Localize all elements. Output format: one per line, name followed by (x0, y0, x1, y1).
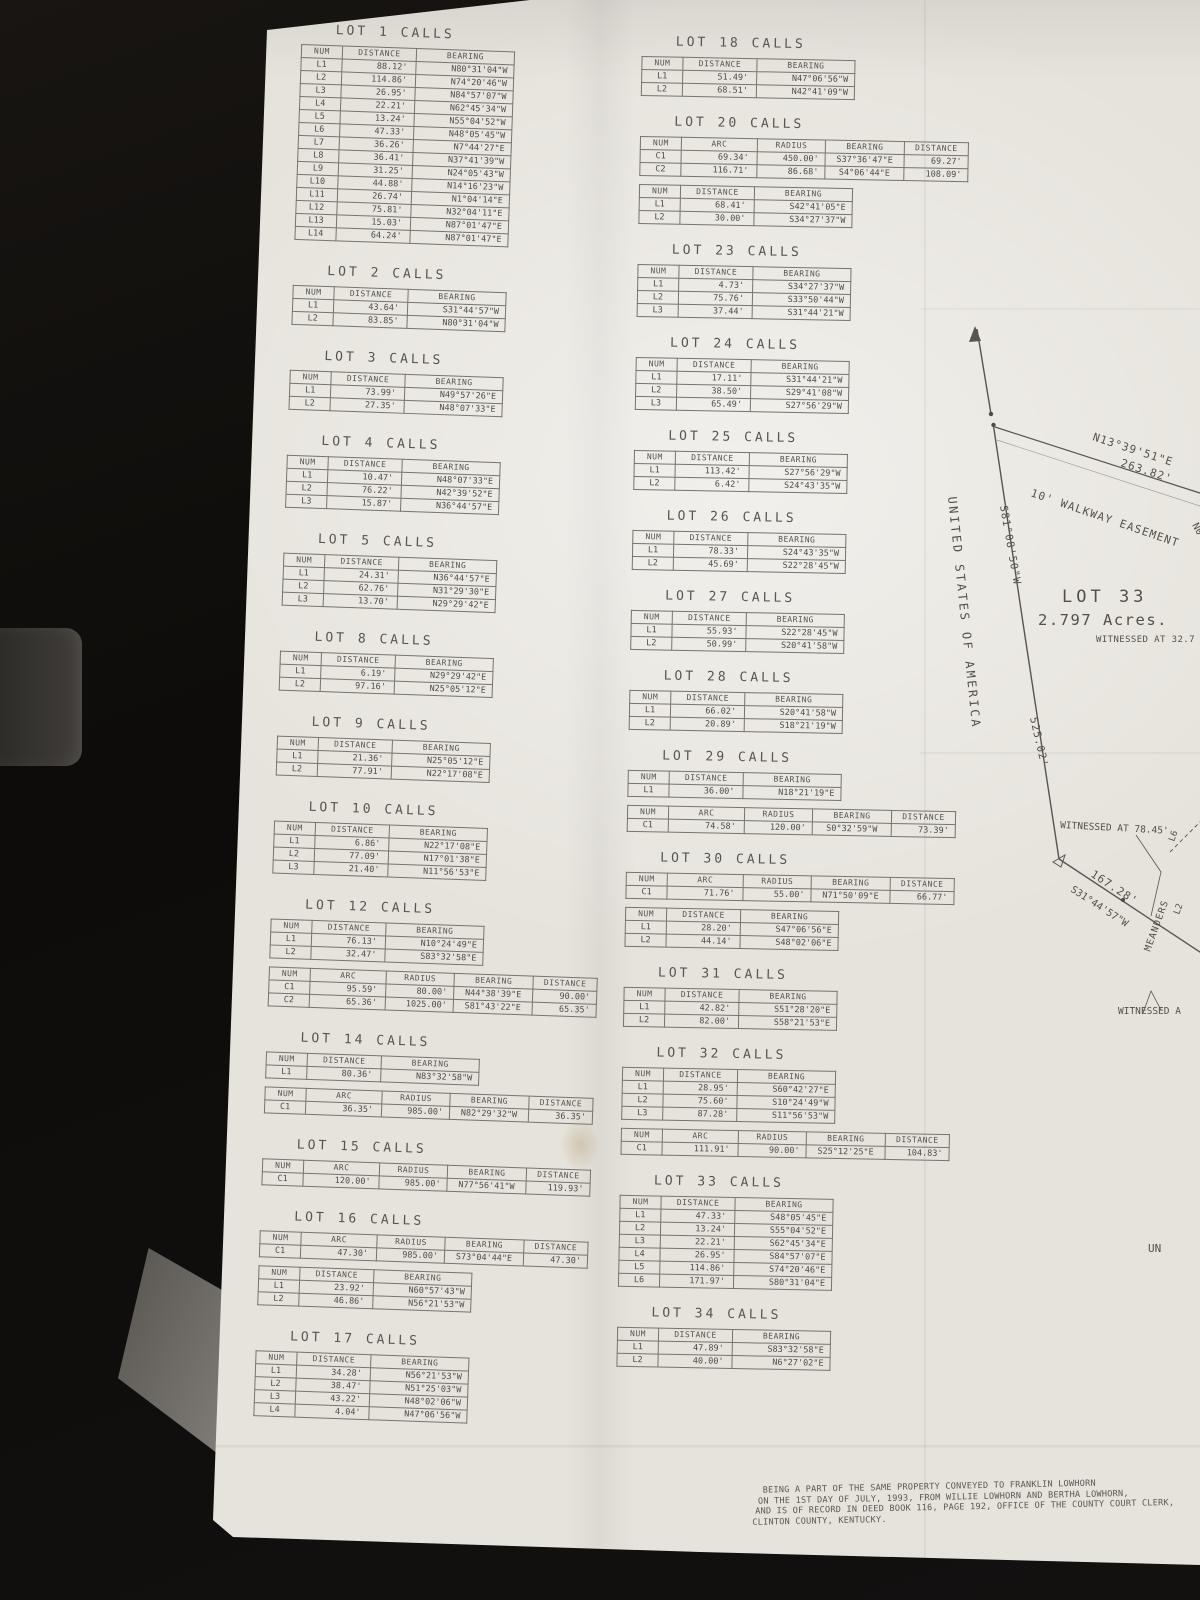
map-label-owner: UNITED STATES OF AMERICA (945, 496, 983, 730)
call-cell: L2 (619, 1221, 660, 1235)
call-cell: L1 (642, 70, 683, 84)
call-cell: 97.16' (320, 679, 394, 695)
call-cell: N71°50'09"E (811, 889, 890, 904)
call-cell: N47°06'56"W (369, 1407, 467, 1423)
call-cell: 21.40' (314, 861, 388, 877)
call-cell: L2 (629, 716, 670, 730)
call-cell: N77°56'41"W (447, 1178, 526, 1194)
call-cell: 47.30' (300, 1245, 376, 1261)
column-header: NUM (631, 610, 672, 624)
call-cell: 111.91' (662, 1142, 738, 1156)
lot-title: LOT 17 CALLS (290, 1329, 596, 1355)
call-cell: S11°56'53"W (737, 1109, 835, 1124)
call-cell: S20°41'58"W (746, 639, 844, 654)
map-label-meanders: MEANDERS (1142, 899, 1171, 953)
lot-title: LOT 23 CALLS (672, 243, 978, 264)
call-cell: S0°32'59"W (812, 822, 891, 837)
call-cell: 985.00' (376, 1248, 444, 1263)
call-cell: C1 (640, 149, 681, 163)
calls-table: NUMDISTANCEBEARINGL147.33'S48°05'45"EL21… (618, 1195, 834, 1291)
call-cell: L4 (254, 1403, 295, 1417)
call-cell: L5 (619, 1260, 660, 1274)
calls-table: NUMARCRADIUSBEARINGDISTANCEC147.30'985.0… (259, 1230, 589, 1268)
call-cell: 74.58' (668, 819, 744, 833)
column-header: NUM (638, 264, 679, 278)
lot-calls-block: LOT 10 CALLSNUMDISTANCEBEARINGL16.86'N22… (272, 799, 614, 886)
lot-calls-block: LOT 16 CALLSNUMARCRADIUSBEARINGDISTANCEC… (257, 1208, 600, 1317)
calls-table: NUMDISTANCEBEARINGL147.89'S83°32'58"EL24… (616, 1327, 831, 1371)
call-cell: 46.86' (299, 1293, 373, 1309)
calls-table: NUMDISTANCEBEARINGL128.95'S60°42'27"EL27… (621, 1067, 836, 1124)
lot-title: LOT 3 CALLS (324, 349, 630, 375)
lot-title: LOT 12 CALLS (305, 898, 611, 924)
corner-point (989, 412, 993, 416)
call-cell: L6 (618, 1273, 659, 1287)
lot-calls-block: LOT 29 CALLSNUMDISTANCEBEARINGL136.00'N1… (627, 748, 969, 839)
calls-table: NUMDISTANCEBEARINGL16.86'N22°17'08"EL277… (272, 821, 488, 881)
call-row: L136.00'N18°21'19"E (628, 783, 841, 800)
call-row: L282.00'S58°21'53"E (623, 1013, 836, 1030)
call-cell: C1 (264, 1100, 305, 1114)
call-cell: S25°12'25"E (806, 1145, 885, 1160)
call-cell: 20.89' (670, 717, 744, 731)
calls-table: NUMARCRADIUSBEARINGDISTANCEC171.76'55.00… (625, 872, 954, 905)
call-cell: 90.00' (738, 1144, 806, 1158)
call-cell: 108.09' (904, 168, 968, 182)
call-cell: N36°44'57"E (400, 498, 498, 514)
call-cell: 65.49' (676, 397, 750, 411)
call-cell: N80°31'04"W (407, 315, 505, 331)
call-cell: L3 (286, 494, 327, 508)
column-header: NUM (620, 1195, 661, 1209)
call-cell: 40.00' (658, 1354, 732, 1368)
call-cell: 80.36' (307, 1066, 381, 1082)
column-header: DISTANCE (904, 142, 968, 156)
call-cell: L2 (636, 383, 677, 397)
column-header: NUM (630, 690, 671, 704)
call-cell: L1 (638, 277, 679, 291)
map-label-bearing: S81°08'50"W (997, 504, 1023, 585)
call-cell: N48°07'33"E (404, 400, 502, 416)
lot-calls-block: LOT 2 CALLSNUMDISTANCEBEARINGL143.64'S31… (291, 263, 633, 337)
column-header: RADIUS (743, 875, 811, 889)
call-cell: N6°27'02"E (732, 1355, 830, 1370)
call-cell: 86.68' (757, 165, 825, 179)
call-cell: C1 (626, 885, 667, 899)
paper-crease (210, 1445, 1200, 1449)
call-cell: 82.00' (664, 1014, 738, 1028)
lot-calls-block: LOT 14 CALLSNUMDISTANCEBEARINGL180.36'N8… (264, 1029, 607, 1125)
plat-map-fragment: UNITED STATES OF AMERICA S81°08'50"W N13… (920, 300, 1200, 1310)
calls-table: NUMARCRADIUSBEARINGDISTANCEC1111.91'90.0… (620, 1128, 949, 1161)
call-row: L240.00'N6°27'02"E (617, 1353, 830, 1370)
call-cell: L2 (623, 1013, 664, 1027)
calls-table: NUMDISTANCEBEARINGL136.00'N18°21'19"E (627, 770, 841, 801)
calls-table: NUMDISTANCEBEARINGL134.28'N56°21'53"WL23… (253, 1350, 469, 1423)
call-row: L26.42'S24°43'35"W (634, 476, 847, 493)
call-cell: 27.35' (330, 398, 404, 414)
call-cell: N42°41'09"W (756, 85, 854, 100)
call-cell: N29°29'42"E (397, 596, 495, 612)
call-cell: N11°56'53"E (388, 864, 486, 880)
call-row: L6171.97'S80°31'04"E (618, 1273, 831, 1290)
lot-calls-block: LOT 32 CALLSNUMDISTANCEBEARINGL128.95'S6… (620, 1045, 962, 1162)
lot-title: LOT 14 CALLS (300, 1031, 606, 1057)
call-cell: N56°21'53"W (373, 1296, 471, 1312)
lot-calls-block: LOT 33 CALLSNUMDISTANCEBEARINGL147.33'S4… (618, 1173, 960, 1294)
map-label-witness: WITNESSED AT 78.45' (1060, 820, 1169, 837)
column-header: NUM (640, 136, 681, 150)
call-cell: L2 (622, 1093, 663, 1107)
call-cell: L1 (617, 1340, 658, 1354)
call-cell: N87°01'47"E (410, 230, 508, 246)
call-cell: L2 (631, 636, 672, 650)
lot-calls-block: LOT 34 CALLSNUMDISTANCEBEARINGL147.89'S8… (616, 1305, 957, 1374)
call-cell: L1 (636, 370, 677, 384)
calls-table: NUMDISTANCEBEARINGL178.33'S24°43'35"WL24… (632, 530, 847, 574)
call-cell: L1 (620, 1208, 661, 1222)
lot-calls-block: LOT 17 CALLSNUMDISTANCEBEARINGL134.28'N5… (253, 1328, 596, 1428)
call-cell: 44.14' (666, 934, 740, 948)
call-cell: S4°06'44"E (825, 166, 904, 181)
column-header: NUM (639, 184, 680, 198)
call-row: L365.49'S27°56'29"W (635, 396, 848, 413)
call-cell: 45.69' (673, 557, 747, 571)
call-cell: L2 (632, 556, 673, 570)
lot-title: LOT 18 CALLS (676, 35, 982, 56)
call-cell: L2 (292, 311, 333, 325)
map-label-witness: WITNESSED A (1118, 1006, 1181, 1017)
calls-table: NUMDISTANCEBEARINGL143.64'S31°44'57"WL28… (291, 285, 506, 332)
call-cell: 37.44' (678, 304, 752, 318)
call-cell: S31°44'21"W (752, 306, 850, 321)
call-cell: 120.00' (303, 1173, 379, 1189)
calls-table: NUMARCRADIUSBEARINGDISTANCEC1120.00'985.… (261, 1158, 591, 1196)
map-label-cut-text: UN (1148, 1242, 1161, 1255)
map-label-distance: 525.02' (1027, 716, 1050, 769)
call-cell: 119.93' (526, 1181, 590, 1196)
call-cell: N25°05'12"E (394, 681, 492, 697)
lot-title: LOT 20 CALLS (674, 115, 980, 136)
calls-table: NUMDISTANCEBEARINGL180.36'N83°32'58"W (265, 1051, 480, 1085)
call-cell: L2 (258, 1292, 299, 1306)
lot-title: LOT 10 CALLS (308, 800, 614, 826)
call-cell: L2 (279, 677, 320, 691)
lot-calls-block: LOT 1 CALLSNUMDISTANCEBEARINGL188.12'N80… (294, 22, 641, 252)
call-cell: L1 (639, 197, 680, 211)
call-cell: L2 (276, 762, 317, 776)
calls-table: NUMDISTANCEBEARINGL155.93'S22°28'45"WL25… (630, 610, 845, 654)
call-cell: L1 (625, 920, 666, 934)
call-cell: L2 (639, 210, 680, 224)
calls-table: NUMARCRADIUSBEARINGDISTANCEC169.34'450.0… (639, 136, 969, 182)
call-cell: 32.47' (311, 946, 385, 962)
lot-title: LOT 1 CALLS (335, 23, 641, 49)
calls-table: NUMDISTANCEBEARINGL168.41'S42°41'05"EL23… (638, 184, 853, 228)
call-cell: 13.70' (323, 594, 397, 610)
call-cell: L3 (273, 860, 314, 874)
call-cell: 985.00' (381, 1104, 449, 1119)
lot-calls-block: LOT 8 CALLSNUMDISTANCEBEARINGL16.19'N29°… (279, 629, 621, 703)
call-cell: C1 (627, 818, 668, 832)
lot-title: LOT 33 CALLS (654, 1173, 960, 1194)
calls-table: NUMDISTANCEBEARINGL117.11'S31°44'21"WL23… (635, 357, 850, 414)
call-cell: 68.51' (682, 83, 756, 97)
calls-table: NUMDISTANCEBEARINGL188.12'N80°31'04"WL21… (294, 44, 515, 247)
call-cell: 30.00' (680, 211, 754, 225)
call-row: L220.89'S18°21'19"W (629, 716, 842, 733)
call-cell: 69.27' (904, 155, 968, 169)
map-label-lot-number: LOT 33 (1062, 587, 1147, 607)
column-header: RADIUS (738, 1131, 806, 1145)
calls-table: NUMDISTANCEBEARINGL142.82'S51°28'20"EL28… (623, 987, 838, 1031)
call-cell: 36.35' (528, 1109, 592, 1124)
call-cell: L2 (637, 290, 678, 304)
call-row: L387.28'S11°56'53"W (622, 1106, 835, 1123)
lot-calls-block: LOT 9 CALLSNUMDISTANCEBEARINGL121.36'N25… (276, 714, 618, 788)
call-cell: L1 (629, 703, 670, 717)
call-cell: C1 (262, 1172, 303, 1186)
call-cell: C1 (259, 1244, 300, 1258)
column-header: NUM (617, 1327, 658, 1341)
dark-object-left-edge (0, 628, 82, 766)
call-cell: 71.76' (667, 886, 743, 900)
calls-table: NUMDISTANCEBEARINGL14.73'S34°27'37"WL275… (637, 264, 852, 321)
calls-table: NUMDISTANCEBEARINGL166.02'S20°41'58"WL22… (629, 690, 844, 734)
calls-table: NUMDISTANCEBEARINGL173.99'N49°57'26"EL22… (288, 370, 503, 417)
call-cell: L3 (619, 1234, 660, 1248)
calls-table: NUMDISTANCEBEARINGL121.36'N25°05'12"EL27… (276, 736, 491, 783)
call-cell: 50.99' (672, 637, 746, 651)
call-cell: L3 (635, 396, 676, 410)
column-header: NUM (633, 530, 674, 544)
photo-of-survey-plat: LOT 1 CALLSNUMDISTANCEBEARINGL188.12'N80… (0, 0, 1200, 1600)
boundary-line (977, 329, 991, 414)
call-cell: S83°32'58"E (385, 949, 483, 965)
call-cell: 36.35' (305, 1101, 381, 1117)
lot-title: LOT 9 CALLS (311, 715, 617, 741)
call-cell: L1 (266, 1065, 307, 1079)
call-cell: 47.30' (523, 1253, 587, 1268)
call-cell: L2 (634, 476, 675, 490)
call-cell: C2 (268, 993, 309, 1007)
call-cell: L1 (624, 1000, 665, 1014)
column-header: NUM (626, 872, 667, 886)
call-cell: L1 (632, 543, 673, 557)
call-cell: 55.00' (743, 888, 811, 902)
lot-calls-block: LOT 18 CALLSNUMDISTANCEBEARINGL151.49'N4… (641, 34, 982, 103)
column-header: NUM (628, 770, 669, 784)
calls-table: NUMDISTANCEBEARINGL128.20'S47°06'56"EL24… (624, 907, 839, 951)
call-cell: L2 (625, 933, 666, 947)
call-cell: L1 (631, 623, 672, 637)
call-cell: N18°21'19"E (743, 786, 841, 801)
call-cell: 4.04' (295, 1404, 369, 1420)
call-cell: 36.00' (669, 784, 743, 798)
lot-title: LOT 34 CALLS (651, 1305, 957, 1326)
call-cell: S58°21'53"E (738, 1016, 836, 1031)
column-header: NUM (636, 357, 677, 371)
call-cell: 87.28' (663, 1107, 737, 1121)
call-cell: S48°02'06"E (740, 936, 838, 951)
lot-title: LOT 16 CALLS (294, 1209, 600, 1235)
call-cell: 77.91' (317, 763, 391, 779)
call-cell: S22°28'45"W (747, 559, 845, 574)
column-header: NUM (627, 805, 668, 819)
call-cell: L2 (289, 396, 330, 410)
call-cell: S24°43'35"W (749, 479, 847, 494)
call-cell: L1 (634, 463, 675, 477)
call-cell: 116.71' (681, 163, 757, 177)
call-cell: N83°32'58"W (381, 1069, 479, 1085)
call-cell: N82°29'32"W (449, 1106, 528, 1122)
lot-title: LOT 8 CALLS (314, 630, 620, 656)
call-cell: L3 (282, 592, 323, 606)
call-cell: 83.85' (333, 313, 407, 329)
map-label-line-ref: L2 (1172, 902, 1185, 916)
call-cell: C1 (621, 1141, 662, 1155)
call-cell: S34°27'37"W (754, 213, 852, 228)
lot-calls-block: LOT 15 CALLSNUMARCRADIUSBEARINGDISTANCEC… (261, 1136, 603, 1197)
lot-title: LOT 4 CALLS (321, 434, 627, 460)
calls-table: NUMDISTANCEBEARINGL1113.42'S27°56'29"WL2… (633, 450, 848, 494)
column-header: NUM (622, 1067, 663, 1081)
map-label-easement: 10' WALKWAY EASEMENT (1029, 487, 1181, 550)
column-header: NUM (625, 907, 666, 921)
column-header: NUM (642, 57, 683, 71)
lot-title: LOT 15 CALLS (297, 1138, 603, 1164)
call-cell: 450.00' (757, 152, 825, 166)
lot-calls-block: LOT 20 CALLSNUMARCRADIUSBEARINGDISTANCEC… (638, 114, 980, 231)
call-cell: L4 (619, 1247, 660, 1261)
call-cell: S80°31'04"E (733, 1275, 831, 1290)
lot-calls-block: LOT 28 CALLSNUMDISTANCEBEARINGL166.02'S2… (629, 668, 970, 737)
call-cell: S18°21'19"W (744, 719, 842, 734)
column-header: RADIUS (744, 808, 812, 822)
column-header: RADIUS (757, 139, 825, 153)
call-cell: L1 (628, 783, 669, 797)
lot-title: LOT 2 CALLS (327, 264, 633, 290)
call-cell: N22°17'08"E (391, 766, 489, 782)
calls-table: NUMDISTANCEBEARINGL176.13'N10°24'49"EL23… (269, 918, 484, 965)
call-cell: S81°43'22"E (453, 999, 532, 1015)
calls-table: NUMDISTANCEBEARINGL151.49'N47°06'56"WL26… (641, 56, 856, 100)
call-cell: L3 (637, 303, 678, 317)
lot-calls-block: LOT 30 CALLSNUMARCRADIUSBEARINGDISTANCEC… (624, 850, 966, 954)
call-cell: S73°04'44"E (444, 1250, 523, 1266)
arrowhead-icon (969, 326, 981, 342)
map-label-acreage: 2.797 Acres. (1038, 611, 1168, 629)
call-cell: 985.00' (379, 1176, 447, 1191)
lot-calls-block: LOT 3 CALLSNUMDISTANCEBEARINGL173.99'N49… (288, 348, 630, 422)
call-cell: 15.87' (327, 496, 401, 512)
map-label-line-ref: L6 (1167, 829, 1180, 843)
calls-table: NUMARCRADIUSBEARINGDISTANCEC174.58'120.0… (627, 805, 956, 838)
call-row: L337.44'S31°44'21"W (637, 303, 850, 320)
lot-calls-block: LOT 5 CALLSNUMDISTANCEBEARINGL124.31'N36… (282, 531, 624, 618)
call-cell: L2 (270, 945, 311, 959)
call-row: L268.51'N42°41'09"W (641, 83, 854, 100)
call-cell: 65.35' (532, 1002, 596, 1017)
calls-table: NUMDISTANCEBEARINGL110.47'N48°07'33"EL27… (285, 455, 501, 515)
calls-table: NUMDISTANCEBEARINGL123.92'N60°57'43"WL24… (257, 1265, 472, 1312)
call-cell: S27°56'29"W (750, 399, 848, 414)
call-cell: L1 (622, 1080, 663, 1094)
calls-column-left: LOT 1 CALLSNUMDISTANCEBEARINGL188.12'N80… (253, 22, 642, 1451)
lot-calls-block: LOT 12 CALLSNUMDISTANCEBEARINGL176.13'N1… (268, 896, 612, 1018)
call-cell: 6.42' (675, 477, 749, 491)
column-header: NUM (634, 450, 675, 464)
lot-title: LOT 31 CALLS (658, 965, 964, 986)
call-cell: L2 (641, 83, 682, 97)
call-cell: 64.24' (336, 228, 410, 244)
call-row: L245.69'S22°28'45"W (632, 556, 845, 573)
calls-table: NUMDISTANCEBEARINGL16.19'N29°29'42"EL297… (279, 651, 494, 698)
call-row: L244.14'S48°02'06"E (625, 933, 838, 950)
column-header: NUM (624, 987, 665, 1001)
calls-table: NUMDISTANCEBEARINGL124.31'N36°44'57"EL26… (282, 553, 498, 613)
call-row: L230.00'S34°27'37"W (639, 210, 852, 227)
deed-note: BEING A PART OF THE SAME PROPERTY CONVEY… (752, 1476, 1200, 1528)
lot-title: LOT 5 CALLS (318, 532, 624, 558)
boundary-line (994, 426, 1060, 859)
map-label-witness: WITNESSED AT 32.7 (1096, 635, 1195, 645)
lot-title: LOT 32 CALLS (656, 1045, 962, 1066)
calls-table: NUMARCRADIUSBEARINGDISTANCEC136.35'985.0… (264, 1086, 594, 1124)
call-cell: 1025.00' (385, 997, 453, 1012)
call-cell: L14 (295, 226, 336, 240)
call-cell: 65.36' (309, 994, 385, 1010)
call-cell: 171.97' (659, 1274, 733, 1288)
lot-calls-block: LOT 4 CALLSNUMDISTANCEBEARINGL110.47'N48… (285, 433, 627, 520)
leader-line (1136, 835, 1161, 916)
map-label-bearing-cut: N0 (1189, 521, 1200, 537)
call-cell: L3 (622, 1106, 663, 1120)
call-cell: L2 (617, 1353, 658, 1367)
call-row: L250.99'S20°41'58"W (631, 636, 844, 653)
call-cell: C2 (640, 162, 681, 176)
call-cell: 120.00' (744, 821, 812, 835)
column-header: NUM (621, 1128, 662, 1142)
calls-table: NUMARCRADIUSBEARINGDISTANCEC195.59'80.00… (268, 966, 598, 1017)
lot-calls-block: LOT 31 CALLSNUMDISTANCEBEARINGL142.82'S5… (623, 965, 964, 1034)
